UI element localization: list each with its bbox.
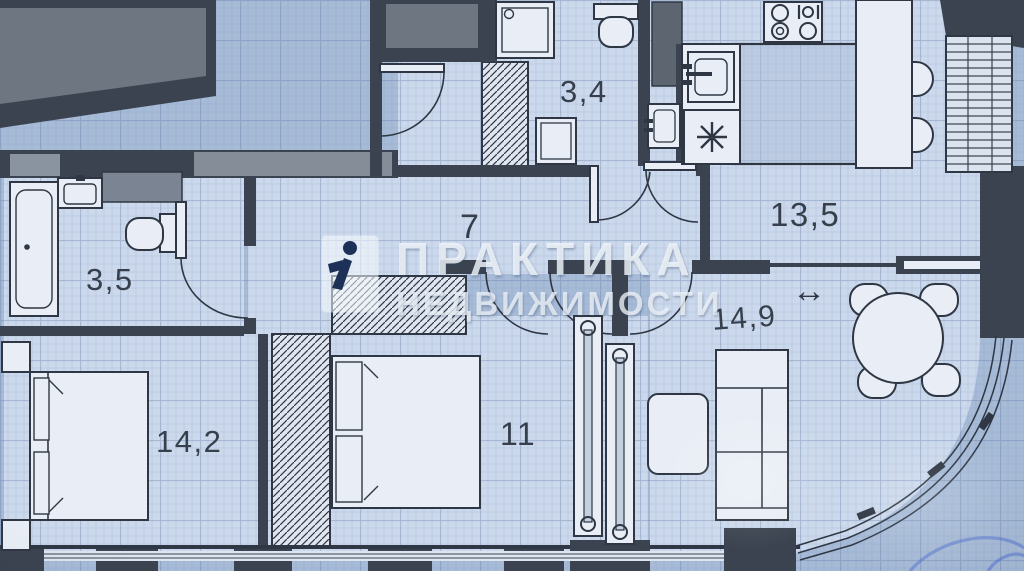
label-hallway: 7 <box>460 208 480 246</box>
washing-machine <box>536 118 576 164</box>
label-kitchen: 13,5 <box>770 196 840 233</box>
sliding-door-arrow: ↔ <box>792 272 826 310</box>
bathroom2-sink <box>644 104 680 148</box>
coffee-table <box>648 394 708 474</box>
duct-box <box>102 172 182 202</box>
label-bathroom-2: 3,4 <box>560 74 608 109</box>
sofa <box>716 350 788 520</box>
floor-plan-photo: ↔ 3,5 3,4 7 13,5 14,9 14,2 11 ПРАКТИКА Н… <box>0 0 1024 571</box>
hallway-wardrobe <box>332 276 466 334</box>
bathtub <box>10 182 58 316</box>
fridge-snowflake-icon <box>684 110 740 164</box>
floor-plan-drawing: ↔ 3,5 3,4 7 13,5 14,9 14,2 11 <box>0 0 1024 571</box>
label-bathroom: 3,5 <box>86 262 134 297</box>
bed-2 <box>332 356 480 508</box>
label-living-room: 14,9 <box>711 300 778 337</box>
bedroom-wardrobe <box>272 334 330 546</box>
east-window-band <box>946 36 1012 172</box>
toilet <box>126 214 177 252</box>
kitchen-peninsula-counter <box>732 44 858 164</box>
bathroom2-shelving <box>482 62 528 174</box>
bar-counter <box>856 0 912 168</box>
dining-table <box>853 293 943 383</box>
label-bedroom: 14,2 <box>156 424 222 459</box>
label-bedroom-2: 11 <box>500 416 536 452</box>
bathroom-sink <box>58 175 102 208</box>
south-windows <box>44 551 724 561</box>
stove-icon <box>764 2 822 42</box>
toilet-2 <box>594 4 638 47</box>
kitchen-sink <box>681 52 734 102</box>
shower-tray <box>496 2 554 58</box>
